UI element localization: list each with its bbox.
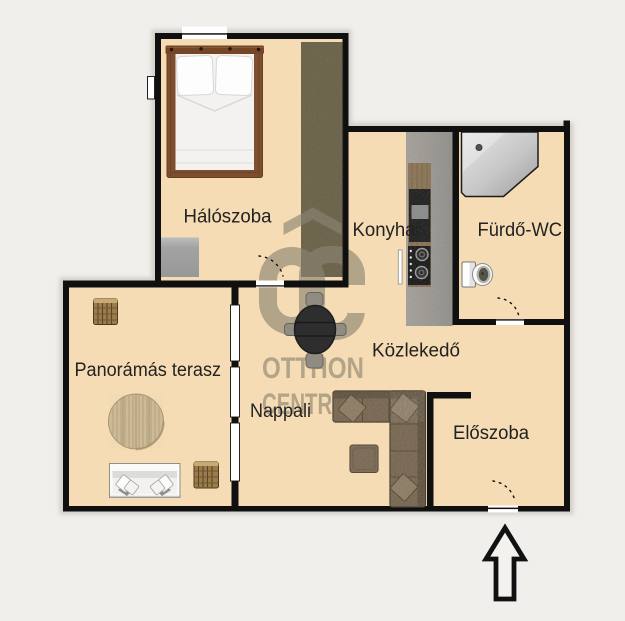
svg-text:Panorámás terasz: Panorámás terasz <box>75 360 222 381</box>
svg-text:Közlekedő: Közlekedő <box>372 341 460 362</box>
svg-text:Hálószoba: Hálószoba <box>184 207 272 228</box>
svg-text:Előszoba: Előszoba <box>453 423 529 444</box>
svg-text:Konyha: Konyha <box>353 220 416 241</box>
svg-text:Fürdő-WC: Fürdő-WC <box>478 220 563 241</box>
svg-text:Nappali: Nappali <box>250 401 311 422</box>
